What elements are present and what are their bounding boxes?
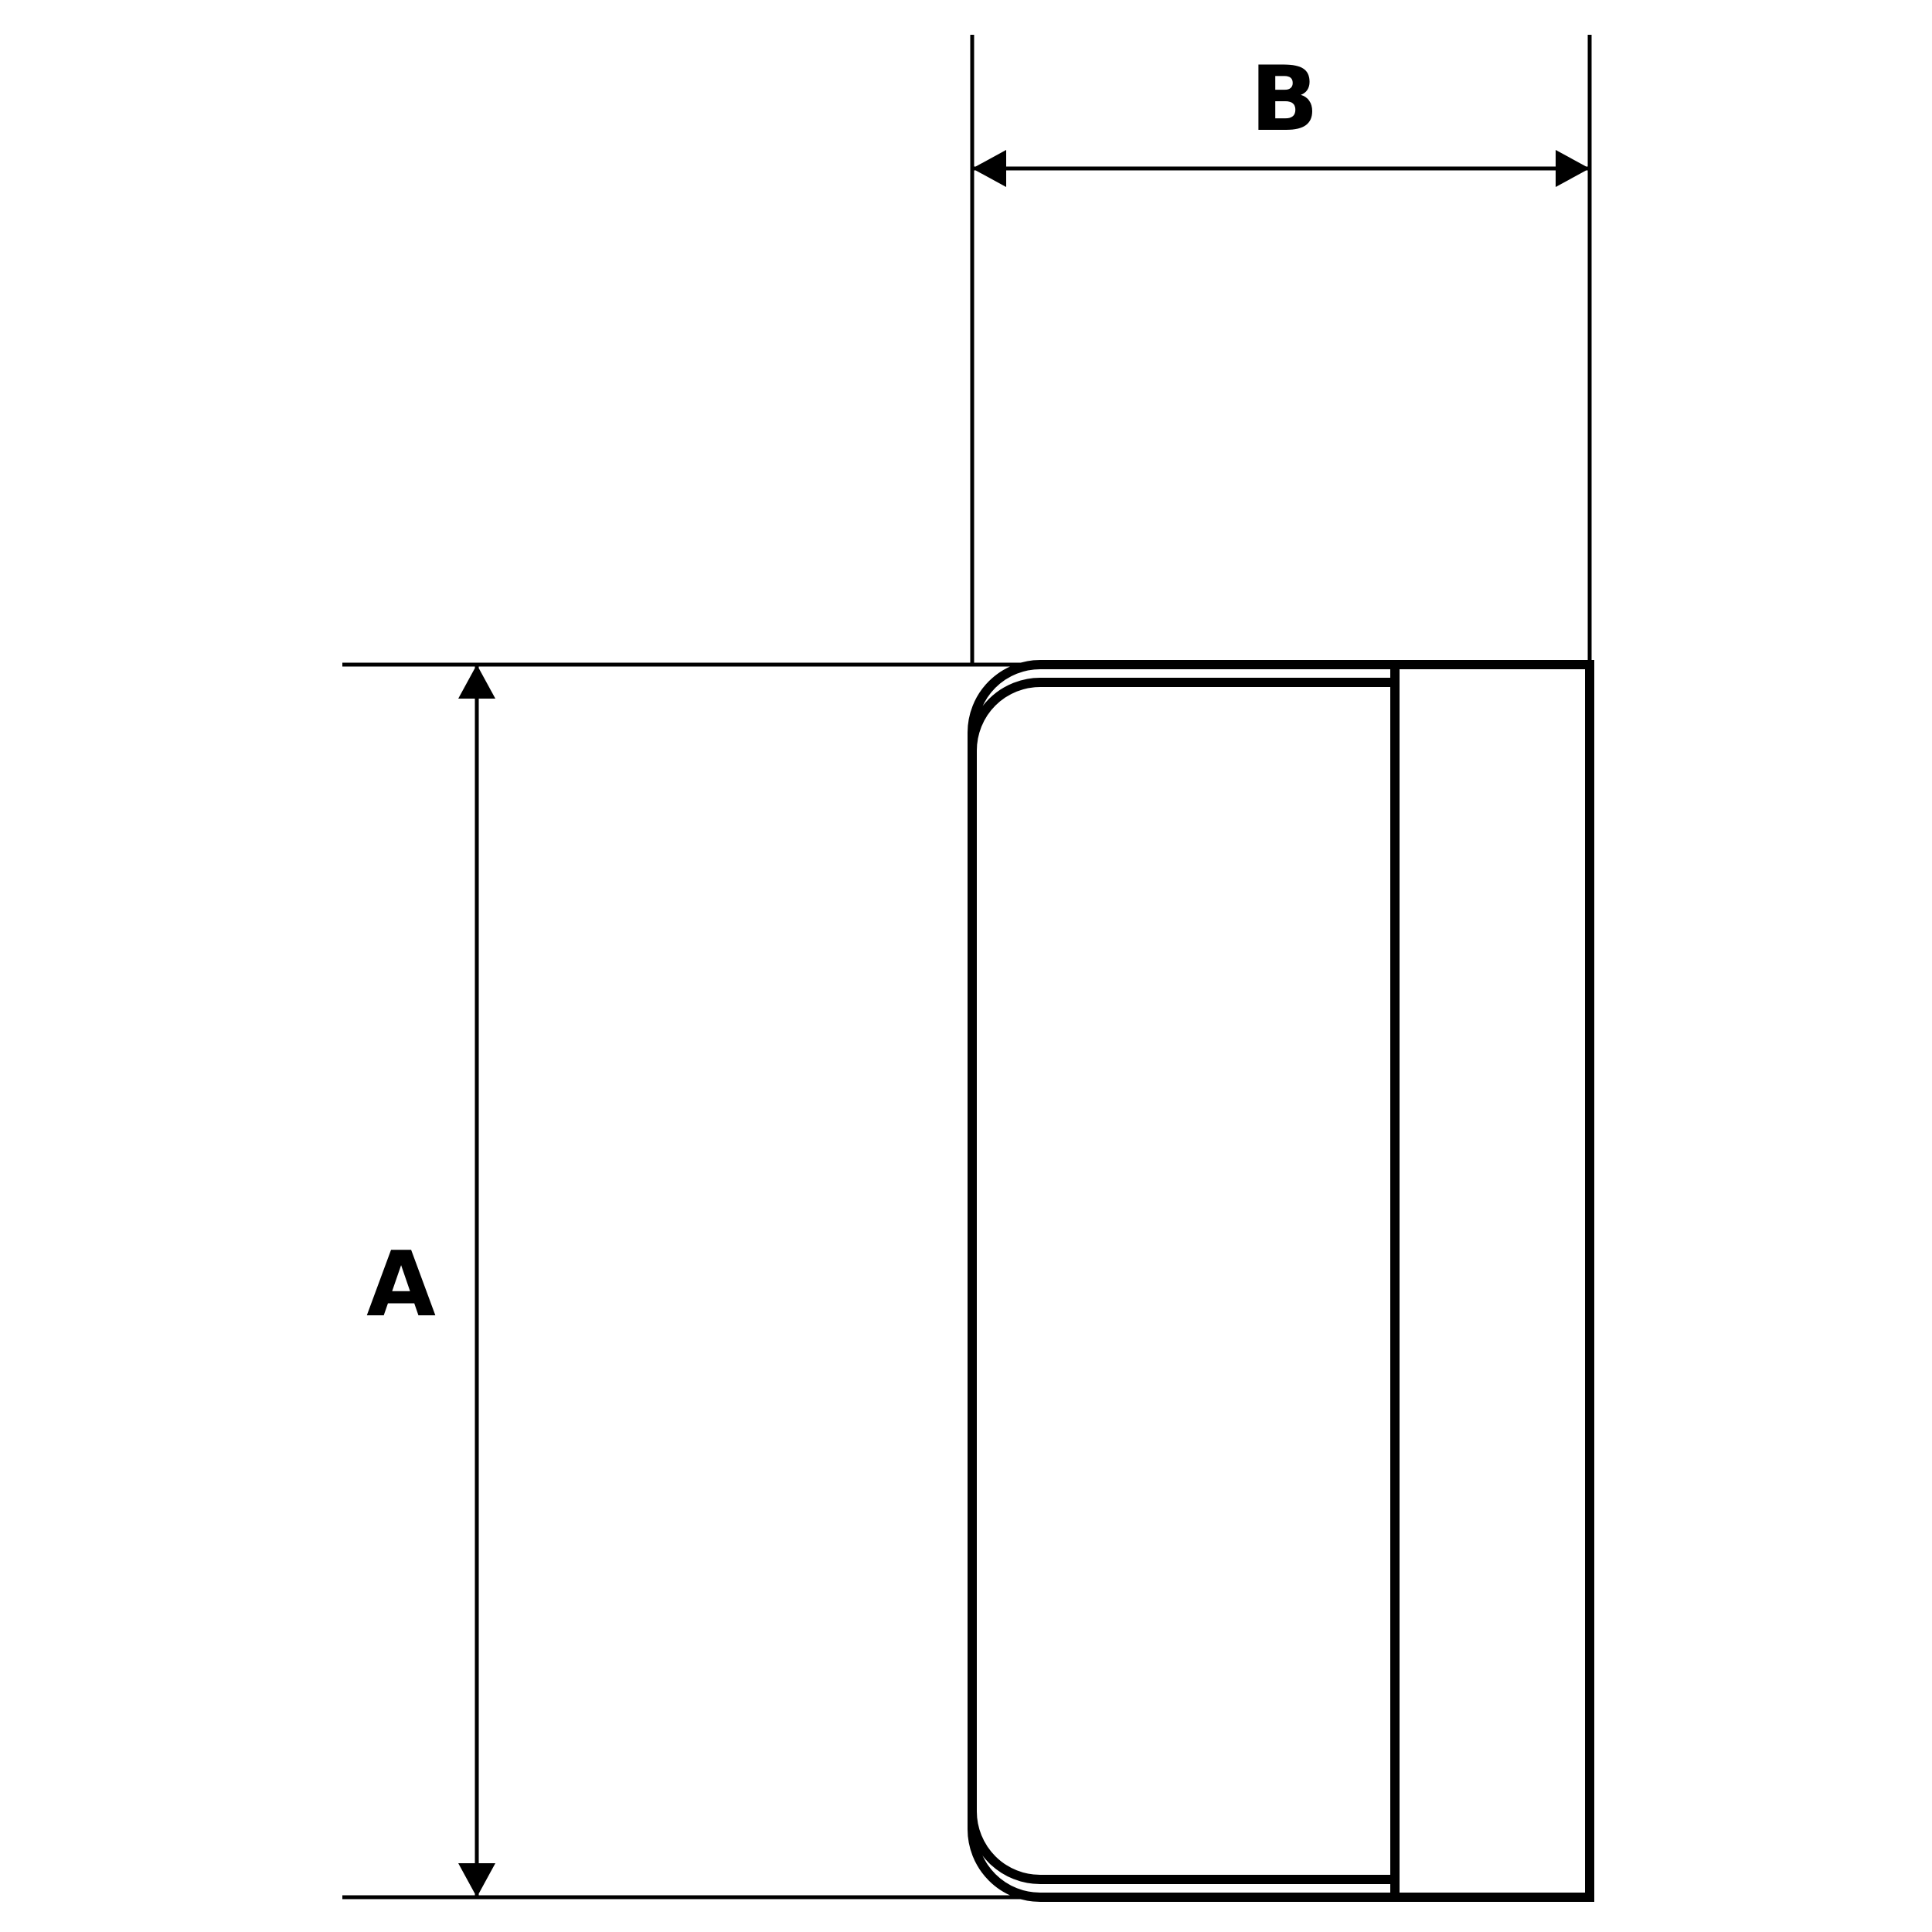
drawing-background: [0, 0, 1932, 1932]
technical-drawing: B A: [0, 0, 1932, 1932]
dimension-label-a: A: [366, 1233, 436, 1337]
dimension-label-b: B: [1250, 47, 1318, 151]
